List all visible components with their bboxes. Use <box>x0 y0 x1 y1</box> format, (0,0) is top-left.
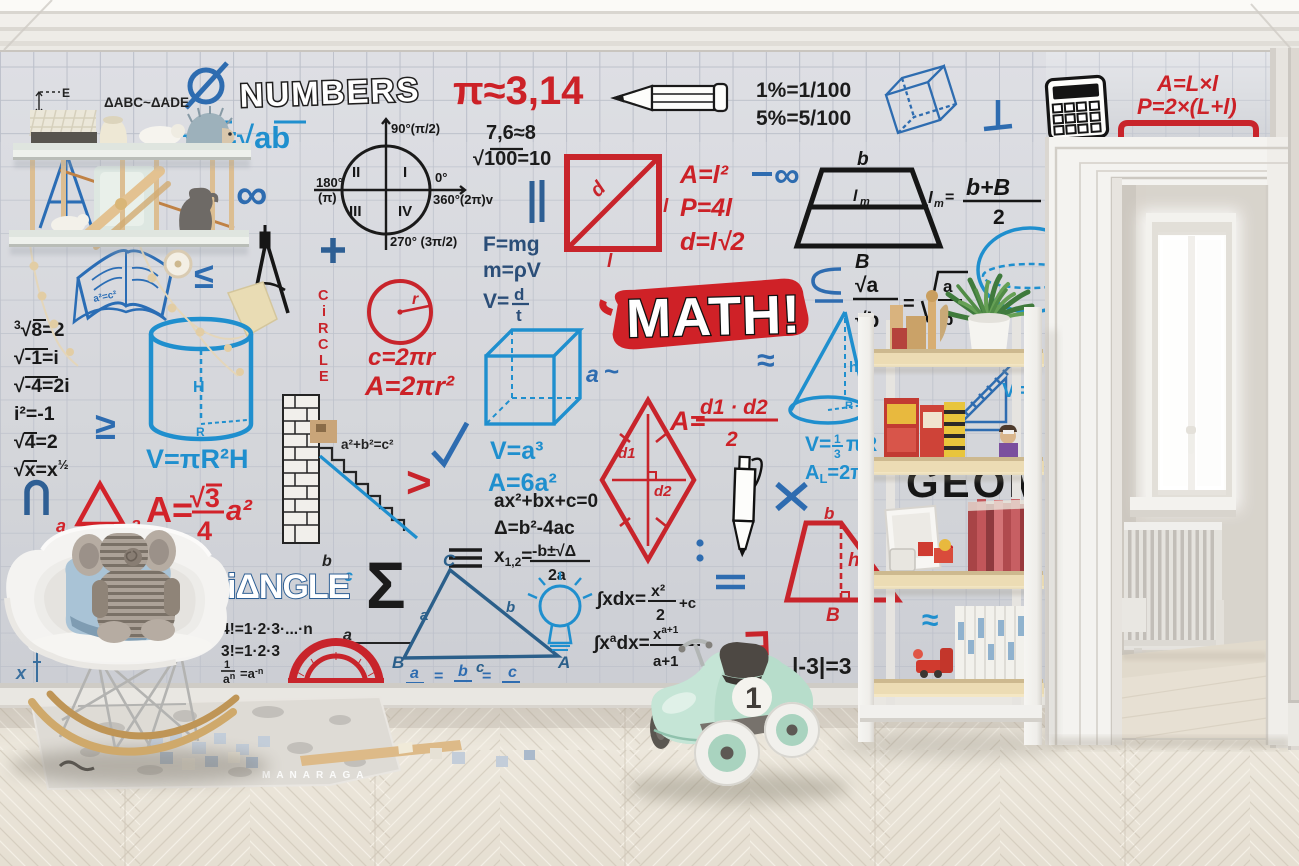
svg-text:√4=2: √4=2 <box>14 431 58 453</box>
svg-text:d=l√2: d=l√2 <box>680 228 745 256</box>
svg-text:R: R <box>845 400 853 412</box>
svg-text:5%=5/100: 5%=5/100 <box>756 107 851 130</box>
svg-text:P=2×(L+l): P=2×(L+l) <box>1137 94 1237 119</box>
svg-text:c=2πr: c=2πr <box>368 344 437 371</box>
svg-text:a²: a² <box>226 495 253 527</box>
svg-text:0°: 0° <box>435 170 447 185</box>
svg-text:2: 2 <box>725 428 738 451</box>
svg-text:A=2πr²: A=2πr² <box>364 371 455 401</box>
svg-text:b: b <box>458 663 468 680</box>
svg-text:H: H <box>193 379 205 396</box>
svg-text:b: b <box>506 599 515 616</box>
svg-text:ΔABC~ΔADE: ΔABC~ΔADE <box>104 95 189 110</box>
svg-text:2: 2 <box>993 206 1005 229</box>
svg-text:i: i <box>322 304 326 320</box>
svg-text:a²+b²=c²: a²+b²=c² <box>341 437 394 452</box>
svg-text:~: ~ <box>604 356 619 386</box>
svg-text:C: C <box>318 337 329 353</box>
svg-text:E: E <box>62 86 70 100</box>
svg-text:1: 1 <box>834 432 841 446</box>
svg-text:l: l <box>853 188 858 205</box>
svg-text:=: = <box>482 668 491 685</box>
svg-text:b: b <box>824 504 834 523</box>
svg-text:3: 3 <box>834 447 841 461</box>
svg-text:√-4=2i: √-4=2i <box>14 375 70 397</box>
svg-text:IV: IV <box>398 203 412 220</box>
svg-text:=: = <box>903 293 915 315</box>
svg-text:d2: d2 <box>654 483 672 500</box>
svg-text:i²=-1: i²=-1 <box>14 403 55 425</box>
svg-text:C: C <box>318 288 329 304</box>
svg-text:r: r <box>412 291 419 308</box>
svg-text:V=πR²H: V=πR²H <box>146 444 248 474</box>
svg-text:B: B <box>392 653 404 672</box>
svg-text:d1 · d2: d1 · d2 <box>700 396 768 419</box>
svg-text:m: m <box>934 198 944 210</box>
svg-text:√-1=i: √-1=i <box>14 347 59 369</box>
svg-text:II: II <box>352 164 360 181</box>
svg-text:≥: ≥ <box>95 406 116 448</box>
svg-text:A=l²: A=l² <box>679 161 729 189</box>
svg-text:d: d <box>514 285 524 304</box>
svg-text:m=ρV: m=ρV <box>483 259 541 282</box>
svg-text:I: I <box>403 164 407 181</box>
svg-text:III: III <box>349 203 362 220</box>
svg-text:∫xdx=: ∫xdx= <box>595 589 646 610</box>
svg-text:V=a³: V=a³ <box>490 437 544 465</box>
svg-text:4!=1·2·3·...·n: 4!=1·2·3·...·n <box>221 621 313 638</box>
svg-text:NUMBERS: NUMBERS <box>239 71 421 114</box>
svg-text:V=: V= <box>805 433 831 456</box>
svg-text:l: l <box>607 251 613 272</box>
svg-text:h: h <box>848 550 860 571</box>
svg-text:1%=1/100: 1%=1/100 <box>756 79 851 102</box>
svg-text:|-3|=3: |-3|=3 <box>792 653 852 679</box>
svg-text:A: A <box>557 653 570 672</box>
svg-text:180°: 180° <box>316 175 343 190</box>
svg-text:π≈3,14: π≈3,14 <box>453 69 584 113</box>
svg-text:2a: 2a <box>548 567 566 584</box>
svg-text:b+B: b+B <box>966 174 1010 200</box>
svg-text:V=: V= <box>483 290 509 313</box>
svg-text:x: x <box>15 663 27 683</box>
svg-text:a: a <box>410 665 419 682</box>
svg-text:-b±√Δ: -b±√Δ <box>532 543 576 560</box>
svg-text:P=4l: P=4l <box>680 194 733 222</box>
svg-text:F=mg: F=mg <box>483 233 540 256</box>
svg-text:1: 1 <box>224 659 230 671</box>
svg-text:√3: √3 <box>190 483 220 513</box>
svg-text:∞: ∞ <box>774 154 800 195</box>
svg-text:≤: ≤ <box>194 255 214 296</box>
svg-text:C: C <box>443 551 456 570</box>
svg-text:=: = <box>945 189 954 206</box>
svg-text:1: 1 <box>745 682 762 715</box>
svg-text:≈: ≈ <box>922 604 938 637</box>
svg-text:c: c <box>508 664 517 681</box>
svg-text:a+1: a+1 <box>653 653 678 670</box>
svg-text:B: B <box>826 605 840 626</box>
svg-text:l: l <box>663 196 669 217</box>
svg-text:Δ=b²-4ac: Δ=b²-4ac <box>494 518 575 539</box>
svg-text:360°(2π)v: 360°(2π)v <box>433 192 494 207</box>
svg-text:3!=1·2·3: 3!=1·2·3 <box>221 643 280 660</box>
svg-text:x²: x² <box>651 583 665 600</box>
svg-text:t: t <box>516 306 522 325</box>
svg-text:270° (3π/2): 270° (3π/2) <box>390 234 457 249</box>
svg-text:A=L×l: A=L×l <box>1156 71 1219 96</box>
svg-text:MANARAGA: MANARAGA <box>262 770 369 781</box>
svg-text:>: > <box>406 458 432 507</box>
svg-text:a: a <box>420 607 428 624</box>
svg-text:≈: ≈ <box>757 342 775 378</box>
svg-text:7,6≈8: 7,6≈8 <box>486 122 536 144</box>
svg-text:R: R <box>318 321 329 337</box>
svg-text:2: 2 <box>656 607 665 624</box>
svg-text:b: b <box>857 149 869 170</box>
svg-text:MATH!: MATH! <box>625 285 801 350</box>
svg-text:R: R <box>196 425 205 439</box>
svg-text:iΔNGLE: iΔNGLE <box>227 568 350 606</box>
svg-text:d1: d1 <box>618 445 636 462</box>
svg-text:√a: √a <box>855 274 879 297</box>
svg-text:a: a <box>586 361 599 387</box>
svg-text:+c: +c <box>679 595 696 612</box>
svg-text:=: = <box>434 668 443 685</box>
svg-text:h: h <box>849 359 858 376</box>
svg-text:B: B <box>855 251 869 273</box>
svg-text:(π): (π) <box>318 190 337 205</box>
svg-text:L: L <box>319 353 328 369</box>
svg-text:A=6a²: A=6a² <box>488 469 557 497</box>
svg-text:m: m <box>860 196 870 208</box>
svg-text:∞: ∞ <box>236 170 267 219</box>
svg-text:A=: A= <box>146 489 193 530</box>
svg-text:90°(π/2): 90°(π/2) <box>391 121 440 136</box>
svg-text:√100=10: √100=10 <box>473 148 551 170</box>
svg-text:Σ: Σ <box>366 548 406 622</box>
svg-text:∫xadx=: ∫xadx= <box>592 631 650 654</box>
svg-text:E: E <box>319 369 329 385</box>
